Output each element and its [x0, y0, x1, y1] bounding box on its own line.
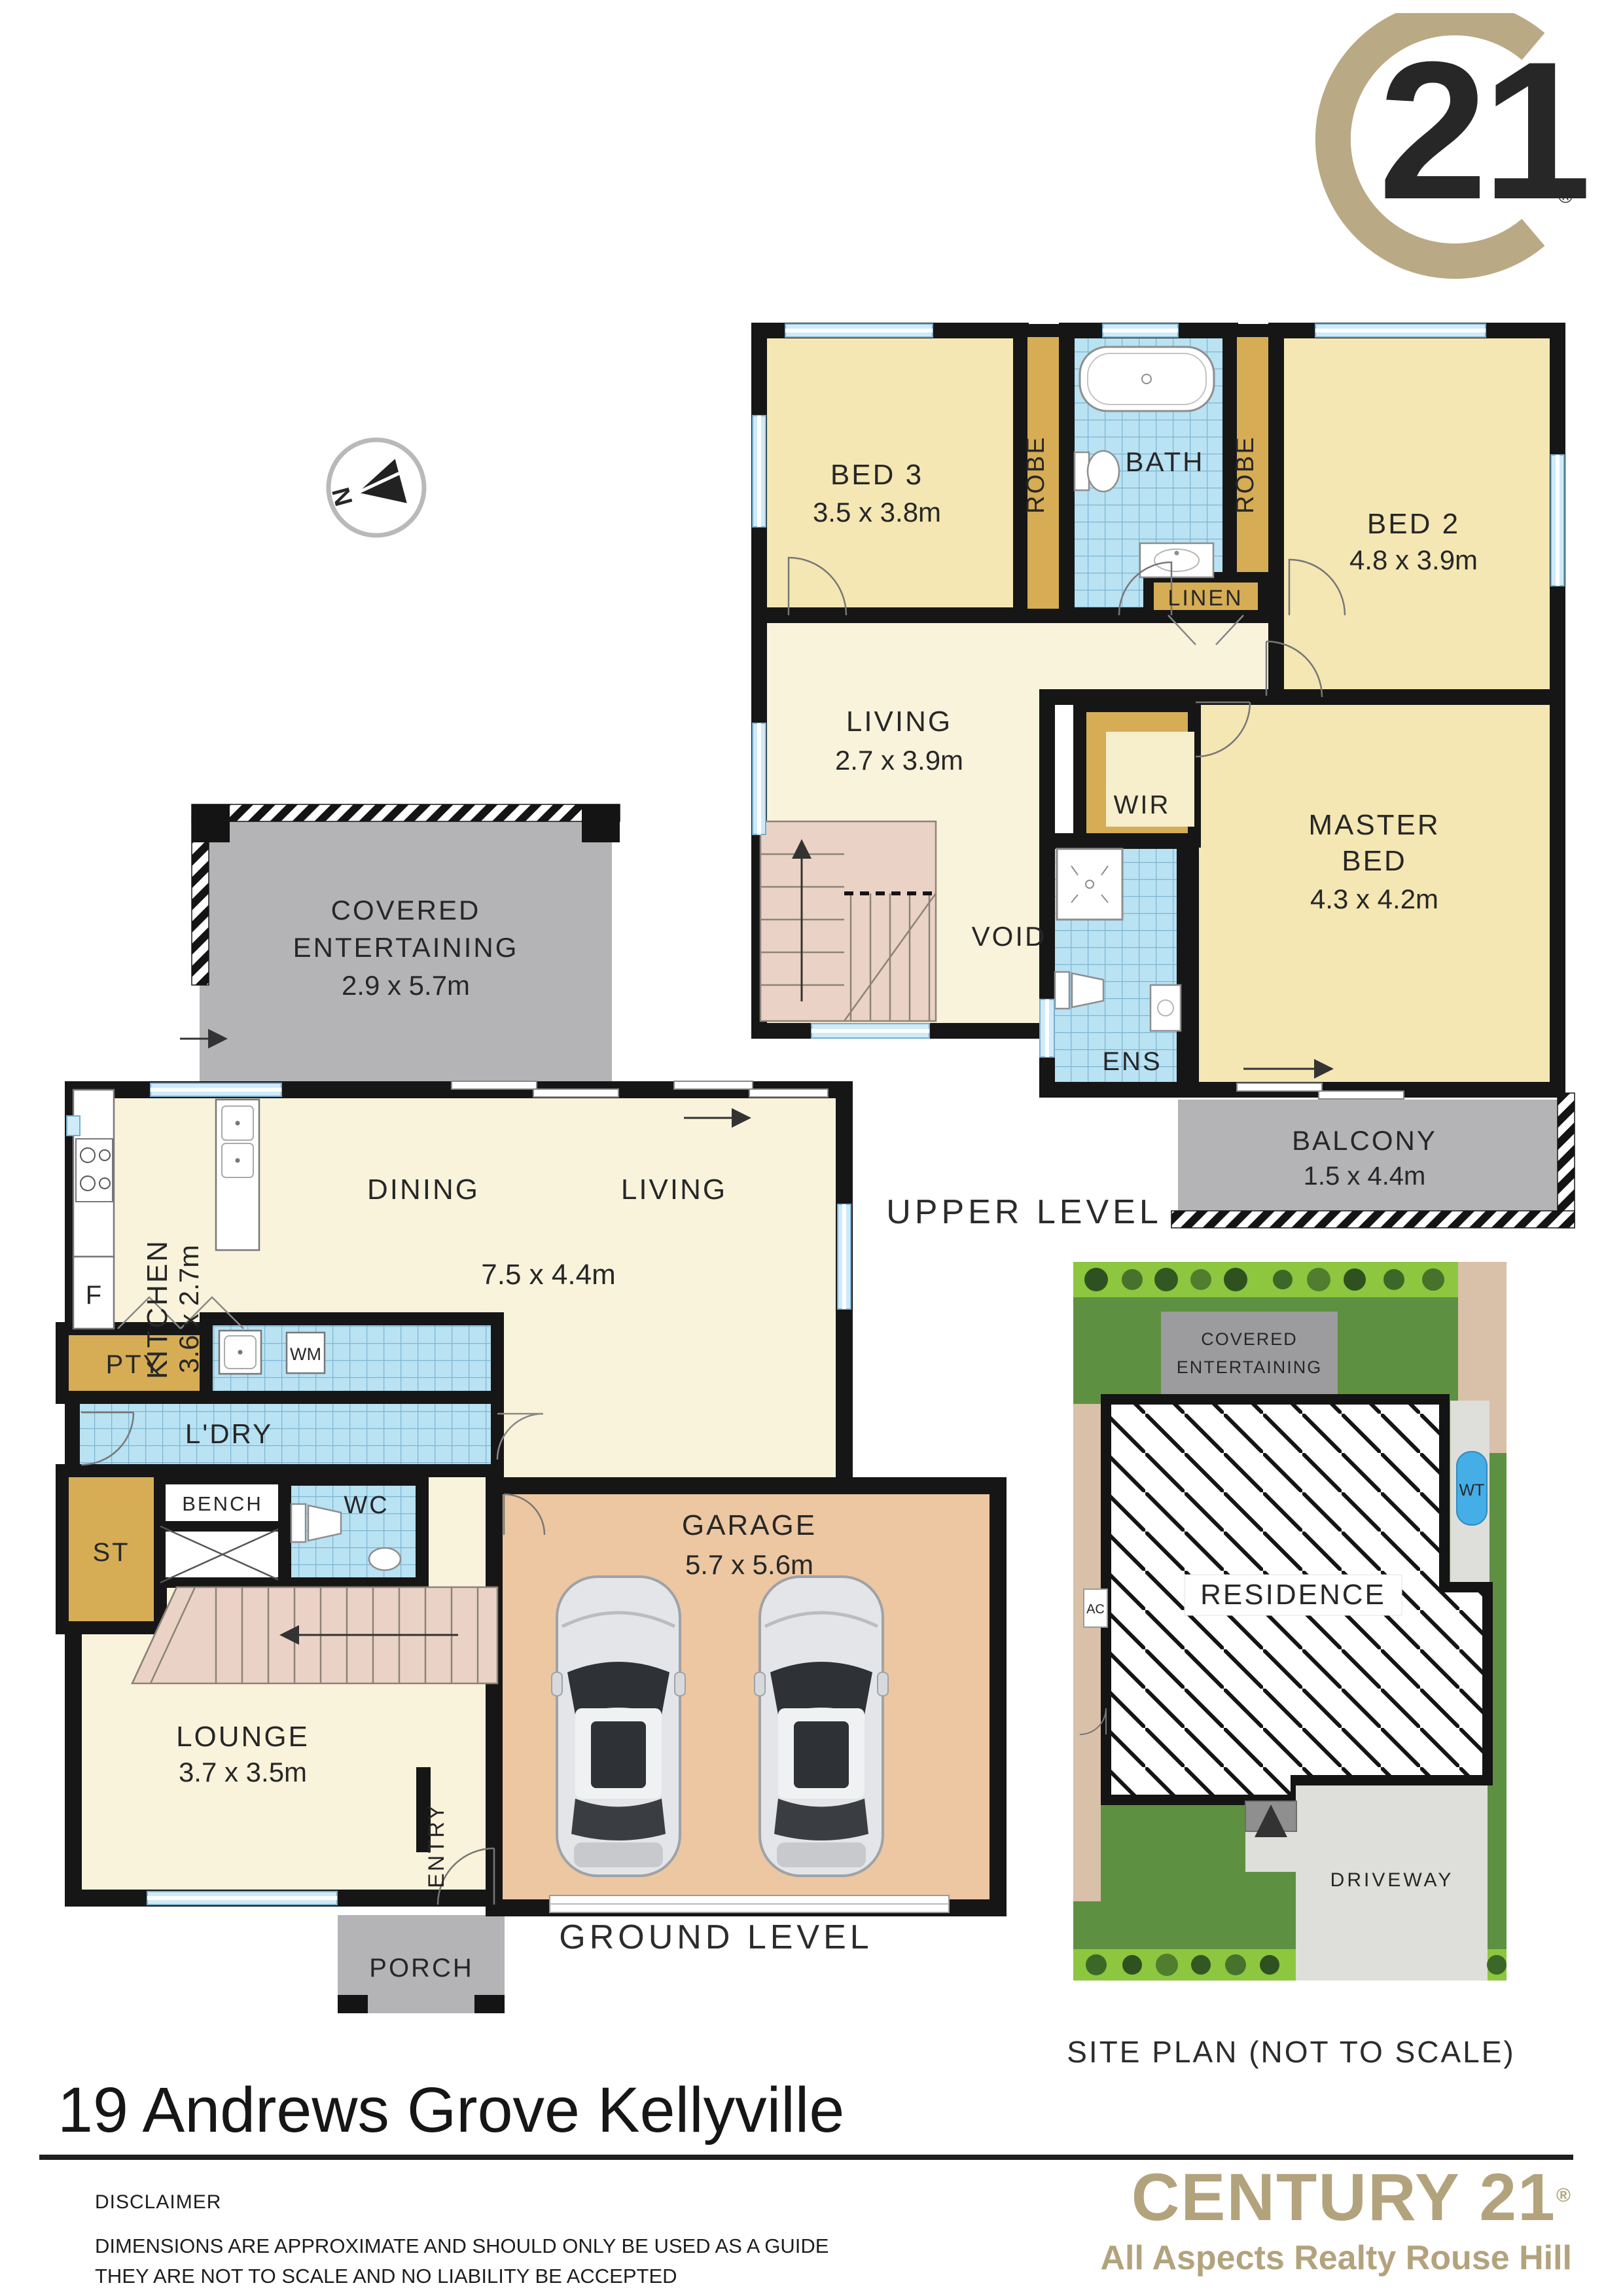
caption-ground-level: GROUND LEVEL	[487, 1918, 945, 1957]
label-ens: ENS	[1102, 1047, 1162, 1076]
site-plan: COVERED ENTERTAINING RESIDENCE DRIVEWAY …	[1067, 1257, 1525, 2075]
footer-divider	[39, 2155, 1573, 2160]
label-bed2: BED 2	[1367, 508, 1460, 540]
logo-registered-mark: ®	[1558, 186, 1573, 207]
logo-number: 21	[1378, 20, 1586, 240]
brand-block: CENTURY 21® All Aspects Realty Rouse Hil…	[1100, 2164, 1572, 2278]
label-bed3-dim: 3.5 x 3.8m	[813, 497, 941, 528]
property-address: 19 Andrews Grove Kellyville	[58, 2073, 844, 2147]
bath-toilet-icon	[1075, 451, 1119, 492]
label-pantry: PTY	[106, 1350, 163, 1379]
site-water-tank: WT	[1457, 1452, 1487, 1525]
laundry-sink-icon	[219, 1331, 261, 1374]
label-robe-left: ROBE	[1022, 435, 1050, 514]
ground-covered-entertaining: COVERED ENTERTAINING 2.9 x 5.7m	[180, 804, 620, 1082]
room-laundry	[73, 1397, 497, 1471]
label-lounge: LOUNGE	[176, 1721, 310, 1753]
label-master-1: MASTER	[1308, 809, 1440, 841]
label-wm: WM	[290, 1344, 321, 1364]
site-soil-left	[1073, 1404, 1101, 1901]
label-fridge: F	[86, 1281, 101, 1310]
label-wir: WIR	[1114, 791, 1171, 819]
label-covered-1: COVERED	[331, 895, 481, 925]
washing-machine-icon: WM	[287, 1333, 325, 1373]
site-covered-entertaining: COVERED ENTERTAINING	[1161, 1312, 1338, 1398]
label-garage-dim: 5.7 x 5.6m	[685, 1549, 813, 1580]
label-store: ST	[92, 1538, 130, 1567]
label-garage: GARAGE	[682, 1509, 817, 1541]
island-bench-icon	[216, 1100, 259, 1250]
fridge-space: F	[73, 1257, 114, 1329]
label-robe-right: ROBE	[1232, 435, 1259, 514]
site-label-covered-1: COVERED	[1201, 1329, 1298, 1349]
label-ac: AC	[1086, 1602, 1105, 1617]
ground-garage: GARAGE 5.7 x 5.6m	[494, 1486, 998, 1912]
label-residence: RESIDENCE	[1200, 1579, 1386, 1611]
label-master-2: BED	[1342, 845, 1406, 877]
north-arrow-icon: N	[321, 432, 432, 543]
ens-shower-icon	[1057, 849, 1122, 920]
brand-name: CENTURY 21®	[1100, 2164, 1572, 2231]
disclaimer-line-2: THEY ARE NOT TO SCALE AND NO LIABILITY B…	[95, 2265, 677, 2288]
label-master-dim: 4.3 x 4.2m	[1310, 884, 1438, 914]
label-lounge-dim: 3.7 x 3.5m	[179, 1757, 307, 1787]
bath-vanity-icon	[1140, 543, 1213, 577]
caption-upper-level: UPPER LEVEL	[795, 1193, 1253, 1232]
label-covered-dim: 2.9 x 5.7m	[342, 970, 470, 1001]
label-bed2-dim: 4.8 x 3.9m	[1349, 545, 1478, 575]
site-residence: RESIDENCE	[1106, 1399, 1488, 1800]
site-garden-top	[1073, 1262, 1458, 1297]
label-porch: PORCH	[369, 1954, 473, 1982]
label-bench: BENCH	[182, 1492, 263, 1515]
label-laundry: L'DRY	[185, 1418, 273, 1449]
caption-site-plan: SITE PLAN (NOT TO SCALE)	[1062, 2034, 1520, 2070]
ground-stairs	[132, 1587, 497, 1683]
ens-vanity-icon	[1150, 985, 1181, 1031]
site-ac-unit: AC	[1084, 1589, 1107, 1627]
disclaimer-line-1: DIMENSIONS ARE APPROXIMATE AND SHOULD ON…	[95, 2234, 829, 2258]
label-bath: BATH	[1126, 446, 1205, 477]
ground-porch: PORCH	[338, 1915, 505, 2013]
label-wc: WC	[344, 1492, 389, 1519]
car-2	[755, 1577, 888, 1876]
label-balcony-dim: 1.5 x 4.4m	[1304, 1162, 1426, 1191]
disclaimer-heading: DISCLAIMER	[95, 2191, 221, 2214]
floorplan-page: 21 ® N	[0, 0, 1623, 2296]
stove-icon	[76, 1139, 113, 1202]
label-linen: LINEN	[1168, 586, 1243, 611]
label-ground-living-dim: 7.5 x 4.4m	[481, 1259, 615, 1291]
wc-basin-icon	[369, 1548, 401, 1570]
label-wt: WT	[1459, 1481, 1485, 1499]
label-covered-2: ENTERTAINING	[293, 932, 519, 963]
label-dining: DINING	[367, 1174, 480, 1206]
brand-office: All Aspects Realty Rouse Hill	[1100, 2238, 1572, 2278]
brand-name-text: CENTURY 21	[1132, 2160, 1556, 2234]
label-driveway: DRIVEWAY	[1330, 1869, 1454, 1891]
ground-level-plan: COVERED ENTERTAINING 2.9 x 5.7m PORCH GA…	[26, 798, 1008, 2042]
label-bed3: BED 3	[830, 459, 923, 491]
century21-logo-icon: 21 ®	[1266, 13, 1594, 301]
site-label-covered-2: ENTERTAINING	[1177, 1357, 1323, 1377]
label-balcony: BALCONY	[1292, 1125, 1437, 1156]
car-1	[552, 1577, 685, 1876]
label-entry: ENTRY	[424, 1803, 449, 1888]
label-upper-living: LIVING	[846, 706, 952, 738]
label-kitchen-dim: 3.6 x 2.7m	[173, 1245, 204, 1373]
brand-registered-mark: ®	[1556, 2185, 1572, 2206]
label-upper-living-dim: 2.7 x 3.9m	[835, 745, 963, 776]
label-ground-living: LIVING	[621, 1174, 727, 1206]
